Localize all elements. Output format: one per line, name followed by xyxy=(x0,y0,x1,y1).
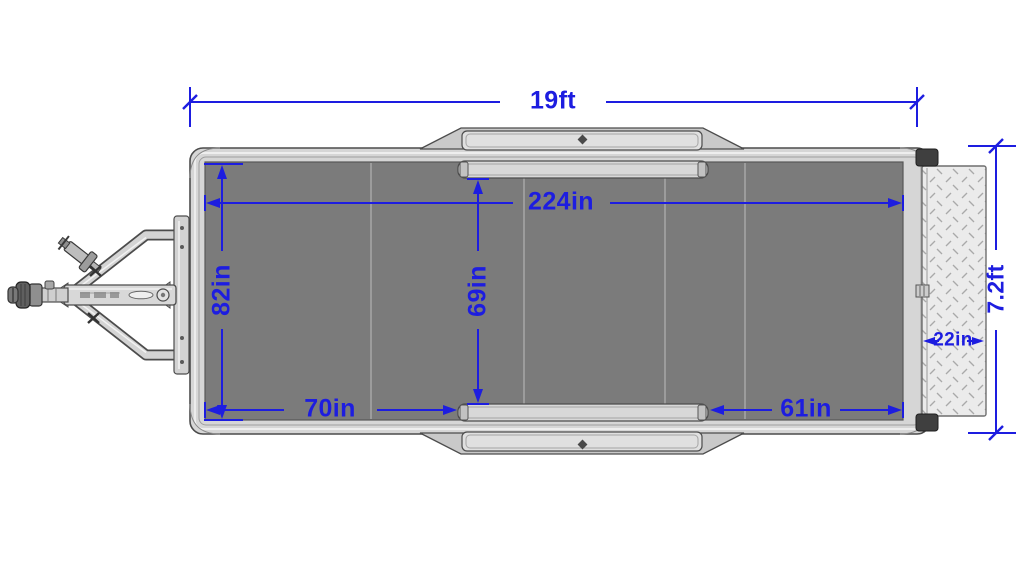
trailer-dimension-diagram: 19ft 224in 82in 69in 70in 61in 22in 7.2f… xyxy=(0,0,1024,576)
dim-label-ramp-span: 7.2ft xyxy=(985,264,1008,313)
dim-label-ramp-depth: 22in xyxy=(933,331,973,350)
trailer-line-drawing xyxy=(0,0,1024,576)
ramp-hinge-top xyxy=(916,149,938,166)
dim-label-deck-width: 82in xyxy=(210,264,235,316)
ramp-hinge-bottom xyxy=(916,414,938,431)
coupler xyxy=(8,281,68,308)
dim-label-between-fenders: 69in xyxy=(466,265,491,317)
dim-label-deck-length: 224in xyxy=(528,190,594,215)
tongue-hitch xyxy=(8,216,189,374)
ramp-latch xyxy=(916,285,929,297)
dim-label-overall-length: 19ft xyxy=(530,89,576,114)
rear-ramp xyxy=(916,149,986,431)
dim-label-front-section: 70in xyxy=(304,397,356,422)
dim-label-rear-section: 61in xyxy=(780,397,832,422)
